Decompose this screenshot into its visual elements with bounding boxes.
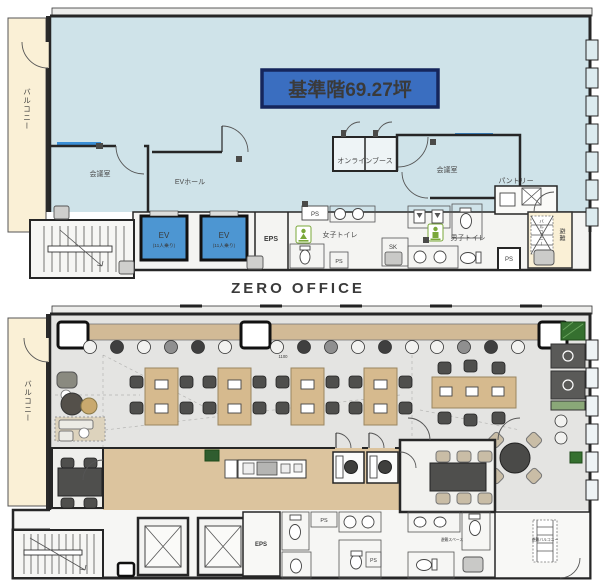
ev2-capacity: (11人乗り) xyxy=(213,242,236,249)
floor-title: 基準階69.27坪 xyxy=(287,78,412,101)
ps-room-right: PS xyxy=(498,248,520,270)
large-meeting-table xyxy=(432,360,516,426)
evac-balcony-vert-label: バルコニー xyxy=(539,219,545,247)
floor-plan-page: バルコニー 会議室 EVホール xyxy=(0,0,600,584)
plant-right xyxy=(570,452,582,463)
plant-corridor xyxy=(205,450,219,461)
dimension-1100: 1100 xyxy=(278,354,288,359)
watermark: ZERO OFFICE xyxy=(231,280,365,297)
meeting-room-bottom-left xyxy=(52,448,103,508)
stairs-top xyxy=(30,220,134,278)
kitchen-counter xyxy=(225,460,306,478)
ps-label-1: PS xyxy=(311,212,319,218)
ps-label-2: PS xyxy=(335,259,343,265)
top-floor-plan: バルコニー 会議室 EVホール xyxy=(0,0,600,300)
ps-label-b2: PS xyxy=(370,558,377,564)
evac-vert-label: 避難 xyxy=(558,227,565,242)
pantry-label: パントリー xyxy=(498,177,533,185)
evac-balcony-label: 避難バルコニー xyxy=(532,537,559,542)
stairs-bottom xyxy=(13,530,103,578)
evac-space-label: 避難スペース xyxy=(441,537,464,542)
sk-label: SK xyxy=(389,245,397,251)
online-booth-label: オンラインブース xyxy=(337,156,392,165)
ev1-label: EV xyxy=(159,231,170,240)
window-accent-left xyxy=(57,142,101,145)
ps-label-b1: PS xyxy=(320,518,328,524)
ev-hall-label: EVホール xyxy=(175,178,205,186)
meeting-room-left-label: 会議室 xyxy=(90,169,111,178)
bottom-floor-plan: 1100 バルコニー xyxy=(0,300,600,584)
top-balcony-label: バルコニー xyxy=(22,88,31,131)
bottom-balcony-label: バルコニー xyxy=(23,380,32,423)
ev1-capacity: (11人乗り) xyxy=(153,242,176,249)
plant-top-right xyxy=(561,322,585,340)
top-right-windows xyxy=(586,40,598,226)
ev2-label: EV xyxy=(219,231,230,240)
floor-title-box: 基準階69.27坪 xyxy=(262,70,438,107)
top-balcony: バルコニー xyxy=(8,16,51,232)
eps-label-bottom: EPS xyxy=(255,542,267,548)
ps-label-3: PS xyxy=(505,257,513,263)
eps-label-top: EPS xyxy=(264,236,278,243)
bottom-balcony: バルコニー xyxy=(8,314,51,510)
meeting-room-right-label: 会議室 xyxy=(437,165,458,174)
womens-toilet-label: 女子トイレ xyxy=(323,230,358,239)
